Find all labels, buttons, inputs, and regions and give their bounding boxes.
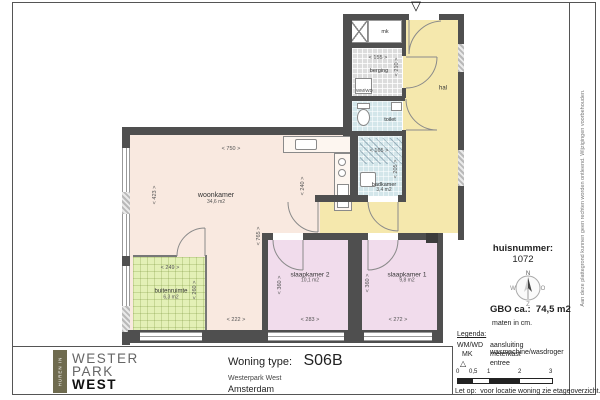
title-block: HUREN IN WESTER PARK WEST Woning type: S… xyxy=(0,346,452,396)
room-label-slaapkamer1: slaapkamer 1 9,8 m2 xyxy=(387,271,426,284)
dim-berging-diepte: < 210 > xyxy=(394,58,400,77)
entree-legend-icon: △ xyxy=(460,359,466,368)
logo-bar: HUREN IN xyxy=(53,350,67,393)
gbo-value: GBO ca.: 74,5 m2 xyxy=(490,304,571,315)
room-label-hal: hal xyxy=(439,86,447,93)
dim-woonkamer-diepte2: < 765 > xyxy=(256,227,262,246)
scale-bar xyxy=(457,378,553,384)
scale-tick: 0,5 xyxy=(469,369,477,375)
disclaimer-text: Aan deze plattegrond kunnen geen rechten… xyxy=(580,8,586,388)
dim-slaapkamer2-diepte: < 360 > xyxy=(277,276,283,295)
legend-title: Legenda: xyxy=(457,331,486,338)
svg-text:N: N xyxy=(526,271,530,277)
logo-line3: WEST xyxy=(72,378,117,391)
room-label-woonkamer: woonkamer 34,6 m2 xyxy=(198,192,234,206)
dim-woonkamer-diepte: < 423 > xyxy=(152,186,158,205)
room-label-buitenruimte: buitenruimte 6,3 m2 xyxy=(154,289,187,302)
scale-tick: 1 xyxy=(487,369,490,375)
scale-tick: 0 xyxy=(456,369,459,375)
dim-slaapkamer1-breedte: < 272 > xyxy=(389,317,408,323)
legend-key: WM/WD xyxy=(457,342,483,349)
huisnummer-value: 1072 xyxy=(480,254,566,265)
dim-woonkamer-breedte: < 750 > xyxy=(222,146,241,152)
woning-type-label: Woning type: xyxy=(228,356,292,368)
dim-strook-breedte: < 222 > xyxy=(227,317,246,323)
scale-tick: 2 xyxy=(518,369,521,375)
svg-text:W: W xyxy=(510,286,516,292)
legend-value: entree xyxy=(490,360,510,367)
info-panel: huisnummer: 1072 N O Z W GBO ca.: 74,5 m… xyxy=(452,240,570,396)
woning-type: Woning type: S06B xyxy=(228,352,343,370)
legend-key: MK xyxy=(462,351,473,358)
svg-text:O: O xyxy=(541,286,546,292)
floorplan-sheet: WM/WD xyxy=(0,0,600,400)
maten-note: maten in cm. xyxy=(492,320,532,327)
dim-buitenruimte-diepte: < 260 > xyxy=(192,281,198,300)
scale-tick: 3 xyxy=(549,369,552,375)
compass-icon: N O Z W xyxy=(509,268,547,306)
room-label-mk: mk xyxy=(381,29,388,35)
entree-icon: ▽ xyxy=(411,0,421,14)
location-note: Let op: voor locatie woning zie etageove… xyxy=(455,388,600,395)
huisnummer: huisnummer: 1072 xyxy=(480,243,566,265)
room-label-toilet: toilet xyxy=(384,117,396,123)
legend-value: meterkast xyxy=(490,351,521,358)
dim-berging-breedte: < 155 > xyxy=(369,55,388,61)
room-label-badkamer: badkamer 3,4 m2 xyxy=(372,182,396,194)
dim-slaapkamer2-breedte: < 283 > xyxy=(301,317,320,323)
dim-badkamer-breedte: < 165 > xyxy=(370,148,389,154)
logo-vertical-text: HUREN IN xyxy=(58,351,63,393)
dim-badkamer-diepte: < 205 > xyxy=(393,160,399,179)
project-name: Westerpark West xyxy=(228,375,281,382)
dim-keuken-diepte: < 240 > xyxy=(300,177,306,196)
project-city: Amsterdam xyxy=(228,384,274,394)
dim-slaapkamer1-diepte: < 360 > xyxy=(365,274,371,293)
logo: HUREN IN WESTER PARK WEST xyxy=(0,346,220,396)
huisnummer-label: huisnummer: xyxy=(480,243,566,254)
dim-buitenruimte-breedte: < 249 > xyxy=(161,265,180,271)
woning-type-value: S06B xyxy=(303,352,342,369)
room-label-berging: berging xyxy=(370,68,388,74)
room-label-slaapkamer2: slaapkamer 2 10,1 m2 xyxy=(290,271,329,284)
